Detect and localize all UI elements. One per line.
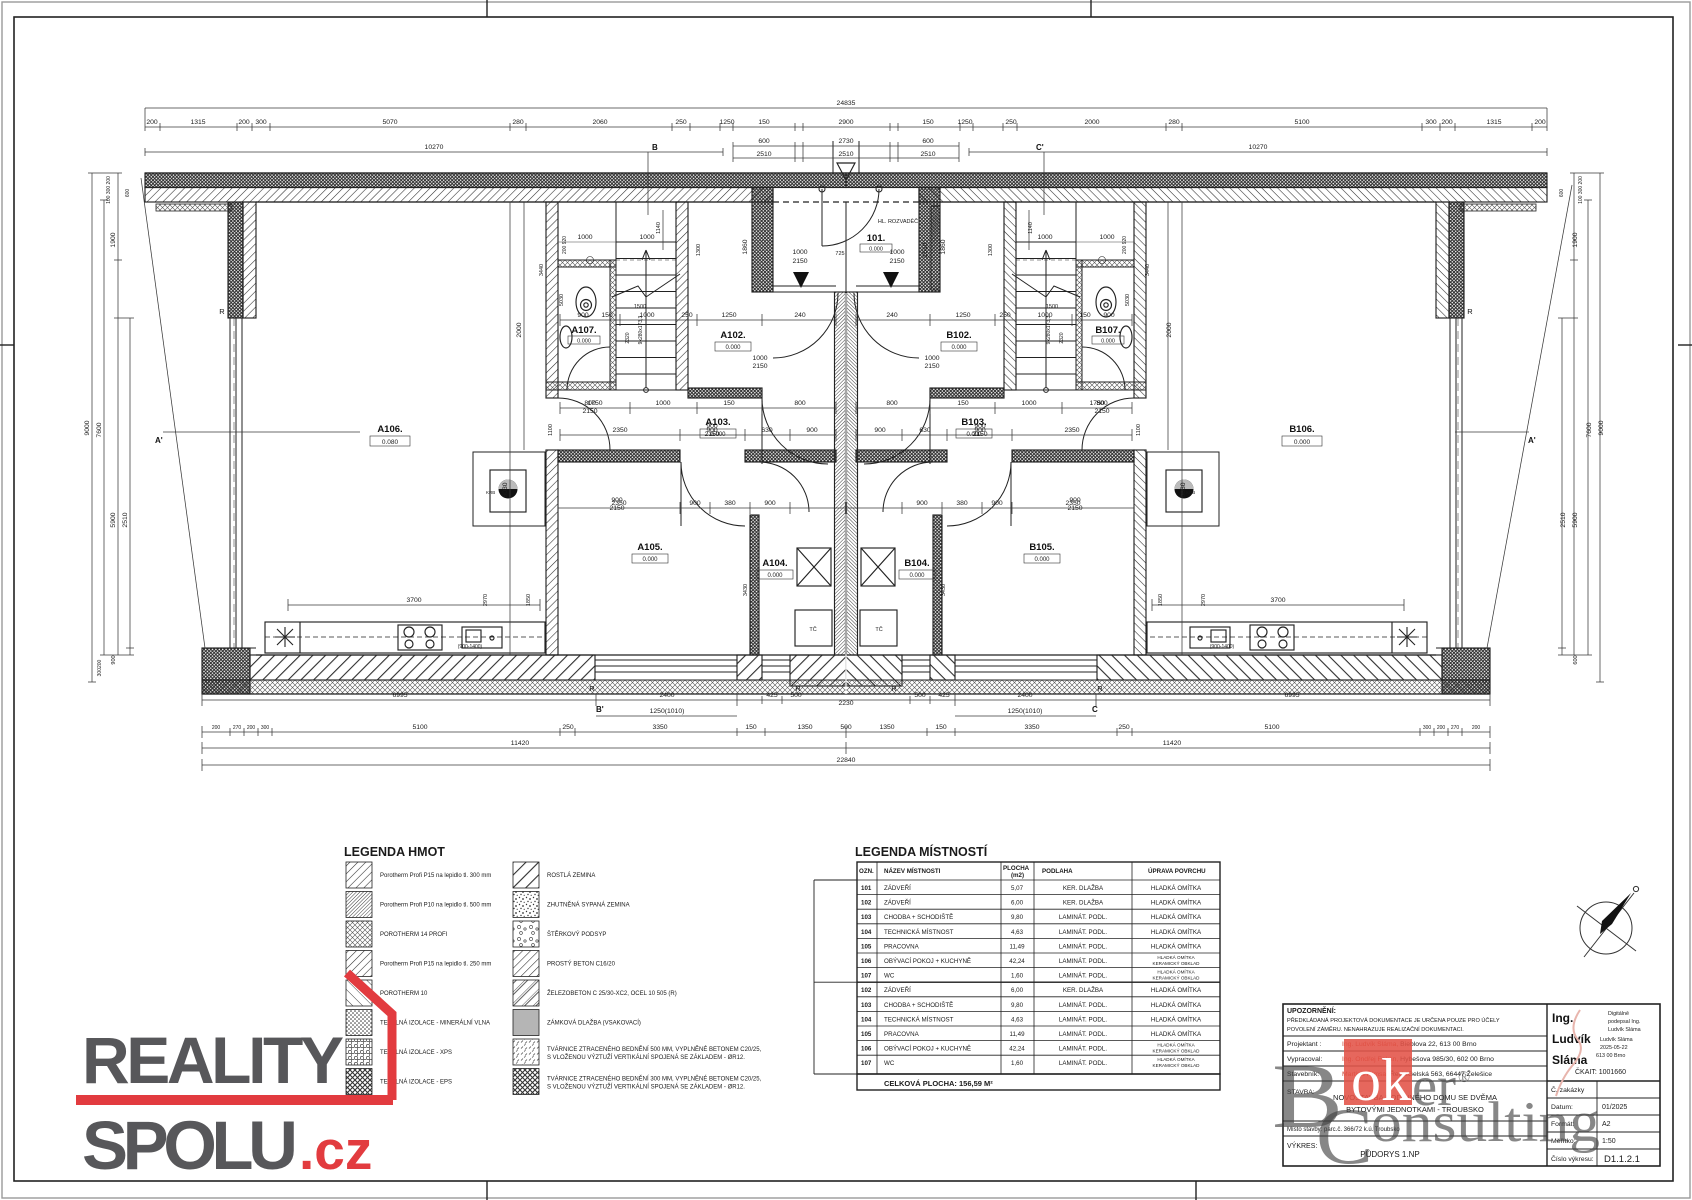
- svg-text:KER. DLAŽBA: KER. DLAŽBA: [1063, 884, 1104, 892]
- svg-text:KERAMICKÝ OBKLAD: KERAMICKÝ OBKLAD: [1153, 1048, 1201, 1054]
- svg-text:0.000: 0.000: [1294, 439, 1311, 446]
- svg-text:2350: 2350: [1064, 427, 1079, 434]
- svg-text:3700: 3700: [406, 597, 421, 604]
- svg-text:2900: 2900: [838, 119, 853, 126]
- svg-text:WC: WC: [884, 1060, 895, 1067]
- svg-text:105: 105: [861, 1031, 872, 1038]
- svg-text:3430: 3430: [941, 584, 947, 596]
- svg-text:ČKAIT: 1001660: ČKAIT: 1001660: [1575, 1067, 1626, 1076]
- svg-text:10270: 10270: [425, 144, 444, 151]
- svg-text:0.000: 0.000: [1101, 339, 1115, 345]
- svg-text:5100: 5100: [1294, 119, 1309, 126]
- svg-text:1250: 1250: [955, 312, 970, 319]
- svg-text:9x280x173,3: 9x280x173,3: [638, 315, 644, 344]
- svg-text:150: 150: [723, 400, 735, 407]
- svg-text:900: 900: [611, 497, 623, 504]
- svg-text:600: 600: [758, 138, 770, 145]
- svg-text:150: 150: [935, 724, 947, 731]
- svg-text:800: 800: [886, 400, 898, 407]
- svg-text:1140: 1140: [1028, 222, 1034, 234]
- svg-text:2320: 2320: [625, 332, 631, 343]
- svg-text:280: 280: [1168, 119, 1180, 126]
- svg-text:PRACOVNA: PRACOVNA: [884, 943, 920, 950]
- svg-text:TECHNICKÁ MÍSTNOST: TECHNICKÁ MÍSTNOST: [884, 929, 954, 936]
- svg-text:3440: 3440: [539, 264, 545, 276]
- svg-text:102: 102: [861, 987, 872, 994]
- svg-text:0.000: 0.000: [725, 345, 741, 351]
- svg-text:300: 300: [261, 725, 270, 731]
- svg-text:630: 630: [761, 427, 773, 434]
- svg-text:1860: 1860: [940, 239, 947, 254]
- svg-text:Porotherm Profi P10 na lepidlo: Porotherm Profi P10 na lepidlo tl. 500 m…: [380, 903, 491, 909]
- svg-text:900: 900: [916, 500, 928, 507]
- svg-text:613 00 Brno: 613 00 Brno: [1596, 1053, 1625, 1059]
- svg-text:2150: 2150: [1094, 408, 1109, 415]
- svg-text:Číslo výkresu:: Číslo výkresu:: [1551, 1154, 1594, 1163]
- svg-text:42,24: 42,24: [1009, 1046, 1025, 1053]
- svg-text:HLADKÁ OMÍTKA: HLADKÁ OMÍTKA: [1151, 929, 1202, 936]
- svg-text:100 300 200: 100 300 200: [1578, 176, 1584, 204]
- svg-text:800: 800: [584, 400, 596, 407]
- svg-text:107: 107: [861, 973, 872, 980]
- svg-text:A2: A2: [1602, 1121, 1611, 1128]
- svg-text:5900: 5900: [110, 512, 117, 527]
- svg-text:150: 150: [745, 724, 757, 731]
- svg-text:240: 240: [886, 312, 898, 319]
- svg-text:4,63: 4,63: [1011, 929, 1024, 936]
- svg-text:3350: 3350: [652, 724, 667, 731]
- svg-text:2400: 2400: [659, 692, 674, 699]
- svg-text:ŽELEZOBETON C 25/30-XC2, OCEL: ŽELEZOBETON C 25/30-XC2, OCEL 10 505 (R): [547, 989, 677, 997]
- svg-text:100 300 200: 100 300 200: [106, 176, 112, 204]
- svg-text:2150: 2150: [792, 258, 807, 265]
- svg-text:SPOLU: SPOLU: [82, 1107, 298, 1184]
- svg-text:6995: 6995: [1284, 692, 1299, 699]
- svg-text:1510: 1510: [922, 242, 929, 257]
- svg-text:200: 200: [1534, 119, 1546, 126]
- svg-text:42,24: 42,24: [1009, 958, 1025, 965]
- svg-text:200: 200: [1441, 119, 1453, 126]
- svg-text:C: C: [1092, 705, 1098, 714]
- svg-text:2230: 2230: [838, 700, 853, 707]
- svg-text:2000: 2000: [516, 322, 523, 337]
- svg-text:5100: 5100: [1264, 724, 1279, 731]
- svg-text:150: 150: [601, 312, 613, 319]
- svg-text:1000: 1000: [889, 249, 904, 256]
- svg-text:CHODBA + SCHODIŠTĚ: CHODBA + SCHODIŠTĚ: [884, 1001, 953, 1009]
- svg-text:0.000: 0.000: [642, 557, 658, 563]
- svg-text:ROSTLÁ ZEMINA: ROSTLÁ ZEMINA: [547, 872, 595, 879]
- svg-text:1900: 1900: [110, 232, 117, 247]
- svg-text:600: 600: [1573, 655, 1579, 664]
- svg-text:ŠTĚRKOVÝ PODSYP: ŠTĚRKOVÝ PODSYP: [547, 930, 606, 938]
- svg-text:107: 107: [861, 1060, 872, 1067]
- svg-text:A102.: A102.: [720, 330, 745, 341]
- svg-text:1000: 1000: [1099, 234, 1114, 241]
- svg-text:Ludvík: Ludvík: [1552, 1032, 1591, 1046]
- svg-text:.cz: .cz: [299, 1119, 372, 1181]
- svg-text:6,00: 6,00: [1011, 987, 1024, 994]
- svg-text:1100: 1100: [548, 424, 554, 436]
- svg-text:150: 150: [957, 400, 969, 407]
- svg-text:1:50: 1:50: [1602, 1138, 1616, 1145]
- svg-text:200 920: 200 920: [562, 236, 568, 254]
- svg-text:POROTHERM 10: POROTHERM 10: [380, 991, 428, 997]
- svg-text:1850: 1850: [1158, 594, 1164, 606]
- svg-text:150: 150: [758, 119, 770, 126]
- svg-text:0.000: 0.000: [767, 573, 783, 579]
- svg-text:3700: 3700: [1270, 597, 1285, 604]
- svg-text:HLADKÁ OMÍTKA: HLADKÁ OMÍTKA: [1157, 954, 1195, 960]
- svg-text:270: 270: [233, 725, 242, 731]
- svg-text:®: ®: [1458, 1069, 1470, 1086]
- svg-text:2150: 2150: [924, 363, 939, 370]
- svg-text:onsulting: onsulting: [1371, 1091, 1600, 1154]
- svg-text:PLOCHA: PLOCHA: [1003, 865, 1030, 872]
- svg-text:Sláma: Sláma: [1552, 1053, 1588, 1067]
- svg-text:2150: 2150: [704, 431, 719, 438]
- svg-text:2730: 2730: [838, 138, 853, 145]
- svg-text:2510: 2510: [122, 512, 129, 527]
- svg-text:240: 240: [794, 312, 806, 319]
- svg-text:ZÁMKOVÁ DLAŽBA (VSAKOVACÍ): ZÁMKOVÁ DLAŽBA (VSAKOVACÍ): [547, 1019, 641, 1027]
- svg-text:11,49: 11,49: [1009, 943, 1025, 950]
- svg-text:2510: 2510: [920, 151, 935, 158]
- svg-text:1850: 1850: [526, 594, 532, 606]
- svg-text:A104.: A104.: [762, 558, 787, 569]
- svg-text:2000: 2000: [1166, 322, 1173, 337]
- svg-text:HLADKÁ OMÍTKA: HLADKÁ OMÍTKA: [1151, 1016, 1202, 1023]
- svg-text:LAMINÁT. PODL.: LAMINÁT. PODL.: [1059, 914, 1107, 921]
- svg-text:1100: 1100: [1136, 424, 1142, 436]
- svg-text:TVÁRNICE ZTRACENÉHO BEDNĚNÍ 50: TVÁRNICE ZTRACENÉHO BEDNĚNÍ 500 MM, VYPL…: [547, 1045, 762, 1053]
- svg-text:CELKOVÁ PLOCHA: 156,59 M²: CELKOVÁ PLOCHA: 156,59 M²: [884, 1079, 993, 1088]
- svg-text:LAMINÁT. PODL.: LAMINÁT. PODL.: [1059, 1060, 1107, 1067]
- svg-text:2060: 2060: [592, 119, 607, 126]
- svg-text:2150: 2150: [582, 408, 597, 415]
- svg-text:WC: WC: [884, 973, 895, 980]
- svg-text:TEPELNÁ IZOLACE - MINERÁLNÍ VL: TEPELNÁ IZOLACE - MINERÁLNÍ VLNA: [380, 1020, 490, 1027]
- svg-text:200: 200: [1437, 725, 1446, 731]
- svg-text:1000: 1000: [639, 312, 654, 319]
- svg-text:600: 600: [1559, 189, 1565, 198]
- svg-text:101: 101: [861, 885, 872, 892]
- svg-text:A107.: A107.: [571, 325, 596, 336]
- svg-text:2400: 2400: [1017, 692, 1032, 699]
- svg-text:725: 725: [835, 251, 844, 257]
- svg-text:B: B: [652, 143, 658, 152]
- svg-text:900: 900: [577, 312, 589, 319]
- svg-text:NÁZEV MÍSTNOSTI: NÁZEV MÍSTNOSTI: [884, 867, 941, 875]
- svg-text:800: 800: [1096, 400, 1108, 407]
- svg-text:200: 200: [212, 725, 221, 731]
- svg-text:1000: 1000: [577, 234, 592, 241]
- svg-text:POROTHERM 14 PROFI: POROTHERM 14 PROFI: [380, 932, 448, 938]
- svg-text:1140: 1140: [656, 222, 662, 234]
- svg-text:500: 500: [840, 724, 852, 731]
- svg-text:1250(1010): 1250(1010): [650, 708, 685, 715]
- svg-text:1,60: 1,60: [1011, 973, 1024, 980]
- svg-text:5900: 5900: [1572, 512, 1579, 527]
- svg-text:1250(1010): 1250(1010): [1008, 708, 1043, 715]
- svg-text:0.000: 0.000: [951, 345, 967, 351]
- svg-text:R: R: [589, 684, 595, 693]
- svg-text:TČ: TČ: [809, 626, 816, 633]
- svg-text:9000: 9000: [84, 420, 91, 435]
- svg-text:1500: 1500: [1046, 304, 1058, 310]
- svg-text:ZÁDVEŘÍ: ZÁDVEŘÍ: [884, 899, 911, 907]
- svg-text:HLADKÁ OMÍTKA: HLADKÁ OMÍTKA: [1151, 987, 1202, 994]
- svg-text:270: 270: [1451, 725, 1460, 731]
- svg-text:5030: 5030: [559, 294, 565, 306]
- svg-text:R: R: [795, 684, 801, 693]
- svg-text:900: 900: [1069, 497, 1081, 504]
- svg-text:ÚPRAVA POVRCHU: ÚPRAVA POVRCHU: [1148, 868, 1206, 875]
- svg-text:250: 250: [675, 119, 687, 126]
- svg-text:6995: 6995: [392, 692, 407, 699]
- svg-text:104: 104: [861, 1016, 872, 1023]
- svg-text:900: 900: [1103, 312, 1115, 319]
- svg-text:103: 103: [861, 914, 872, 921]
- svg-text:5100: 5100: [412, 724, 427, 731]
- svg-text:300200: 300200: [97, 659, 103, 676]
- svg-text:9x280x173,3: 9x280x173,3: [1046, 315, 1052, 344]
- svg-text:Ing.: Ing.: [1552, 1011, 1573, 1025]
- svg-text:2970: 2970: [1201, 594, 1207, 606]
- svg-text:LAMINÁT. PODL.: LAMINÁT. PODL.: [1059, 958, 1107, 965]
- svg-text:0.000: 0.000: [909, 573, 925, 579]
- svg-text:HLADKÁ OMÍTKA: HLADKÁ OMÍTKA: [1151, 914, 1202, 921]
- svg-text:KER. DLAŽBA: KER. DLAŽBA: [1063, 899, 1104, 907]
- svg-text:KERAMICKÝ OBKLAD: KERAMICKÝ OBKLAD: [1153, 975, 1201, 981]
- svg-text:Ludvík Sláma: Ludvík Sláma: [1608, 1027, 1641, 1033]
- svg-text:1315: 1315: [1486, 119, 1501, 126]
- svg-text:OBÝVACÍ POKOJ + KUCHYNĚ: OBÝVACÍ POKOJ + KUCHYNĚ: [884, 1045, 971, 1053]
- svg-text:LAMINÁT. PODL.: LAMINÁT. PODL.: [1059, 973, 1107, 980]
- svg-text:1300: 1300: [696, 244, 702, 256]
- svg-text:TVÁRNICE ZTRACENÉHO BEDNĚNÍ 30: TVÁRNICE ZTRACENÉHO BEDNĚNÍ 300 MM, VYPL…: [547, 1075, 762, 1083]
- svg-text:1860: 1860: [742, 239, 749, 254]
- svg-text:10270: 10270: [1249, 144, 1268, 151]
- svg-text:1900: 1900: [1572, 232, 1579, 247]
- svg-text:380: 380: [956, 500, 968, 507]
- svg-text:Porotherm Profi P15 na lepidlo: Porotherm Profi P15 na lepidlo tl. 250 m…: [380, 962, 491, 968]
- svg-text:900: 900: [974, 423, 986, 430]
- svg-text:150: 150: [922, 119, 934, 126]
- svg-text:01/2025: 01/2025: [1602, 1104, 1627, 1111]
- svg-text:900: 900: [991, 500, 1003, 507]
- svg-text:HLADKÁ OMÍTKA: HLADKÁ OMÍTKA: [1157, 969, 1195, 975]
- svg-text:1000: 1000: [639, 234, 654, 241]
- svg-text:B104.: B104.: [904, 558, 929, 569]
- svg-text:7600: 7600: [96, 422, 103, 437]
- svg-text:0.000: 0.000: [1034, 557, 1050, 563]
- svg-text:800: 800: [794, 400, 806, 407]
- svg-text:REALITY: REALITY: [82, 1023, 344, 1097]
- svg-text:600: 600: [125, 189, 131, 198]
- svg-text:5030: 5030: [1125, 294, 1131, 306]
- svg-text:7600: 7600: [1586, 422, 1593, 437]
- svg-text:B106.: B106.: [1289, 424, 1314, 435]
- svg-text:6030: 6030: [502, 482, 509, 497]
- svg-text:106: 106: [861, 958, 872, 965]
- svg-text:R: R: [1467, 307, 1473, 316]
- svg-text:LAMINÁT. PODL.: LAMINÁT. PODL.: [1059, 1031, 1107, 1038]
- svg-text:250: 250: [681, 312, 693, 319]
- svg-text:250: 250: [562, 724, 574, 731]
- svg-text:ZÁDVEŘÍ: ZÁDVEŘÍ: [884, 884, 911, 892]
- svg-text:300: 300: [255, 119, 267, 126]
- svg-text:630: 630: [919, 427, 931, 434]
- svg-text:HLADKÁ OMÍTKA: HLADKÁ OMÍTKA: [1157, 1056, 1195, 1062]
- svg-text:LAMINÁT. PODL.: LAMINÁT. PODL.: [1059, 1046, 1107, 1053]
- svg-text:B107.: B107.: [1095, 325, 1120, 336]
- svg-text:KERAMICKÝ OBKLAD: KERAMICKÝ OBKLAD: [1153, 1062, 1201, 1068]
- svg-text:PODLAHA: PODLAHA: [1042, 868, 1073, 875]
- svg-text:11420: 11420: [1163, 740, 1182, 747]
- svg-text:200: 200: [1472, 725, 1481, 731]
- svg-text:1000: 1000: [655, 400, 670, 407]
- svg-text:LAMINÁT. PODL.: LAMINÁT. PODL.: [1059, 943, 1107, 950]
- svg-text:1000: 1000: [1021, 400, 1036, 407]
- svg-text:2150: 2150: [1067, 505, 1082, 512]
- svg-text:900: 900: [764, 500, 776, 507]
- svg-text:4,63: 4,63: [1011, 1016, 1024, 1023]
- svg-text:2510: 2510: [756, 151, 771, 158]
- svg-text:KERAMICKÝ OBKLAD: KERAMICKÝ OBKLAD: [1153, 960, 1201, 966]
- svg-text:2150: 2150: [752, 363, 767, 370]
- svg-text:1000: 1000: [924, 355, 939, 362]
- svg-text:HLADKÁ OMÍTKA: HLADKÁ OMÍTKA: [1151, 900, 1202, 907]
- svg-text:R: R: [891, 684, 897, 693]
- svg-text:HLADKÁ OMÍTKA: HLADKÁ OMÍTKA: [1151, 885, 1202, 892]
- svg-text:2510: 2510: [1560, 512, 1567, 527]
- svg-text:6,00: 6,00: [1011, 900, 1024, 907]
- svg-text:500: 500: [914, 692, 926, 699]
- svg-text:3440: 3440: [1145, 264, 1151, 276]
- svg-text:3430: 3430: [743, 584, 749, 596]
- svg-text:9,80: 9,80: [1011, 914, 1024, 921]
- svg-text:PŘEDKLÁDANÁ PROJEKTOVÁ DOKUMEN: PŘEDKLÁDANÁ PROJEKTOVÁ DOKUMENTACE JE UR…: [1287, 1016, 1500, 1024]
- svg-text:Ludvík Sláma: Ludvík Sláma: [1600, 1037, 1633, 1043]
- svg-text:425: 425: [938, 692, 950, 699]
- svg-text:S VLOŽENOU VÝZTUŽÍ VERTIKÁLNÍ: S VLOŽENOU VÝZTUŽÍ VERTIKÁLNÍ SPOJENÁ SE…: [547, 1053, 745, 1061]
- svg-text:11,49: 11,49: [1009, 1031, 1025, 1038]
- svg-text:1250: 1250: [721, 312, 736, 319]
- svg-text:B': B': [596, 705, 604, 714]
- svg-text:106: 106: [861, 1046, 872, 1053]
- svg-text:9,80: 9,80: [1011, 1002, 1024, 1009]
- svg-text:105: 105: [861, 943, 872, 950]
- svg-text:5,07: 5,07: [1011, 885, 1024, 892]
- svg-text:2025-05-22: 2025-05-22: [1600, 1045, 1628, 1051]
- svg-text:2150: 2150: [889, 258, 904, 265]
- svg-text:250: 250: [1005, 119, 1017, 126]
- svg-text:200: 200: [146, 119, 158, 126]
- svg-text:102: 102: [861, 900, 872, 907]
- svg-text:104: 104: [861, 929, 872, 936]
- svg-text:1,60: 1,60: [1011, 1060, 1024, 1067]
- svg-text:A': A': [1528, 436, 1536, 445]
- svg-text:22840: 22840: [837, 757, 856, 764]
- svg-text:1000: 1000: [1037, 312, 1052, 319]
- svg-text:380: 380: [724, 500, 736, 507]
- svg-text:(m2): (m2): [1011, 872, 1024, 879]
- svg-text:OZN.: OZN.: [859, 868, 874, 875]
- svg-text:2510: 2510: [838, 151, 853, 158]
- svg-text:B105.: B105.: [1029, 542, 1054, 553]
- svg-text:425: 425: [766, 692, 778, 699]
- svg-text:900: 900: [689, 500, 701, 507]
- svg-text:OBÝVACÍ POKOJ + KUCHYNĚ: OBÝVACÍ POKOJ + KUCHYNĚ: [884, 957, 971, 965]
- svg-text:TČ: TČ: [875, 626, 882, 633]
- svg-text:1350: 1350: [879, 724, 894, 731]
- svg-text:LEGENDA HMOT: LEGENDA HMOT: [344, 845, 445, 859]
- svg-text:LAMINÁT. PODL.: LAMINÁT. PODL.: [1059, 929, 1107, 936]
- svg-text:D1.1.2.1: D1.1.2.1: [1604, 1154, 1640, 1165]
- svg-text:ZHUTNĚNÁ SYPANÁ ZEMINA: ZHUTNĚNÁ SYPANÁ ZEMINA: [547, 901, 630, 909]
- svg-text:0.000: 0.000: [577, 339, 591, 345]
- svg-text:(900-1400): (900-1400): [458, 644, 483, 650]
- svg-text:C: C: [1316, 1093, 1373, 1181]
- svg-text:900: 900: [806, 427, 818, 434]
- svg-text:280: 280: [512, 119, 524, 126]
- svg-text:1500: 1500: [634, 304, 646, 310]
- svg-text:200: 200: [238, 119, 250, 126]
- svg-text:103: 103: [861, 1002, 872, 1009]
- svg-text:1000: 1000: [752, 355, 767, 362]
- svg-text:200 920: 200 920: [1122, 236, 1128, 254]
- svg-text:R: R: [219, 307, 225, 316]
- svg-text:9000: 9000: [1598, 420, 1605, 435]
- svg-text:24835: 24835: [837, 100, 856, 107]
- svg-text:podepsal Ing.: podepsal Ing.: [1608, 1019, 1640, 1025]
- svg-text:HL. ROZVADĚČ: HL. ROZVADĚČ: [878, 217, 918, 225]
- svg-text:KER. DLAŽBA: KER. DLAŽBA: [1063, 986, 1104, 994]
- svg-text:1000: 1000: [1037, 234, 1052, 241]
- svg-text:LEGENDA MÍSTNOSTÍ: LEGENDA MÍSTNOSTÍ: [855, 844, 988, 859]
- svg-text:900: 900: [111, 655, 117, 664]
- svg-text:ZÁDVEŘÍ: ZÁDVEŘÍ: [884, 986, 911, 994]
- svg-text:R: R: [1097, 684, 1103, 693]
- svg-text:500: 500: [790, 692, 802, 699]
- svg-text:Digitálně: Digitálně: [1608, 1011, 1629, 1017]
- svg-text:PRACOVNA: PRACOVNA: [884, 1031, 920, 1038]
- svg-text:S VLOŽENOU VÝZTUŽÍ VERTIKÁLNÍ: S VLOŽENOU VÝZTUŽÍ VERTIKÁLNÍ SPOJENÁ SE…: [547, 1083, 745, 1091]
- svg-text:HLADKÁ OMÍTKA: HLADKÁ OMÍTKA: [1151, 1031, 1202, 1038]
- svg-text:250: 250: [999, 312, 1011, 319]
- svg-text:2000: 2000: [1084, 119, 1099, 126]
- svg-text:POVOLENÍ ZÁMĚRU. NENAHRAZUJE R: POVOLENÍ ZÁMĚRU. NENAHRAZUJE REALIZAČNÍ …: [1287, 1025, 1464, 1033]
- svg-text:1000: 1000: [792, 249, 807, 256]
- svg-text:2150: 2150: [609, 505, 624, 512]
- svg-text:1350: 1350: [797, 724, 812, 731]
- svg-text:900: 900: [706, 423, 718, 430]
- svg-text:HLADKÁ OMÍTKA: HLADKÁ OMÍTKA: [1151, 943, 1202, 950]
- svg-text:TECHNICKÁ MÍSTNOST: TECHNICKÁ MÍSTNOST: [884, 1016, 954, 1023]
- svg-text:PROSTÝ BETON C16/20: PROSTÝ BETON C16/20: [547, 961, 616, 968]
- svg-text:B102.: B102.: [946, 330, 971, 341]
- svg-text:2350: 2350: [612, 427, 627, 434]
- svg-text:1250: 1250: [957, 119, 972, 126]
- svg-text:5070: 5070: [382, 119, 397, 126]
- svg-text:(900-1400): (900-1400): [1210, 644, 1235, 650]
- svg-text:1250: 1250: [719, 119, 734, 126]
- svg-text:A106.: A106.: [377, 424, 402, 435]
- svg-text:1315: 1315: [190, 119, 205, 126]
- svg-text:2320: 2320: [1059, 332, 1065, 343]
- svg-text:2150: 2150: [972, 431, 987, 438]
